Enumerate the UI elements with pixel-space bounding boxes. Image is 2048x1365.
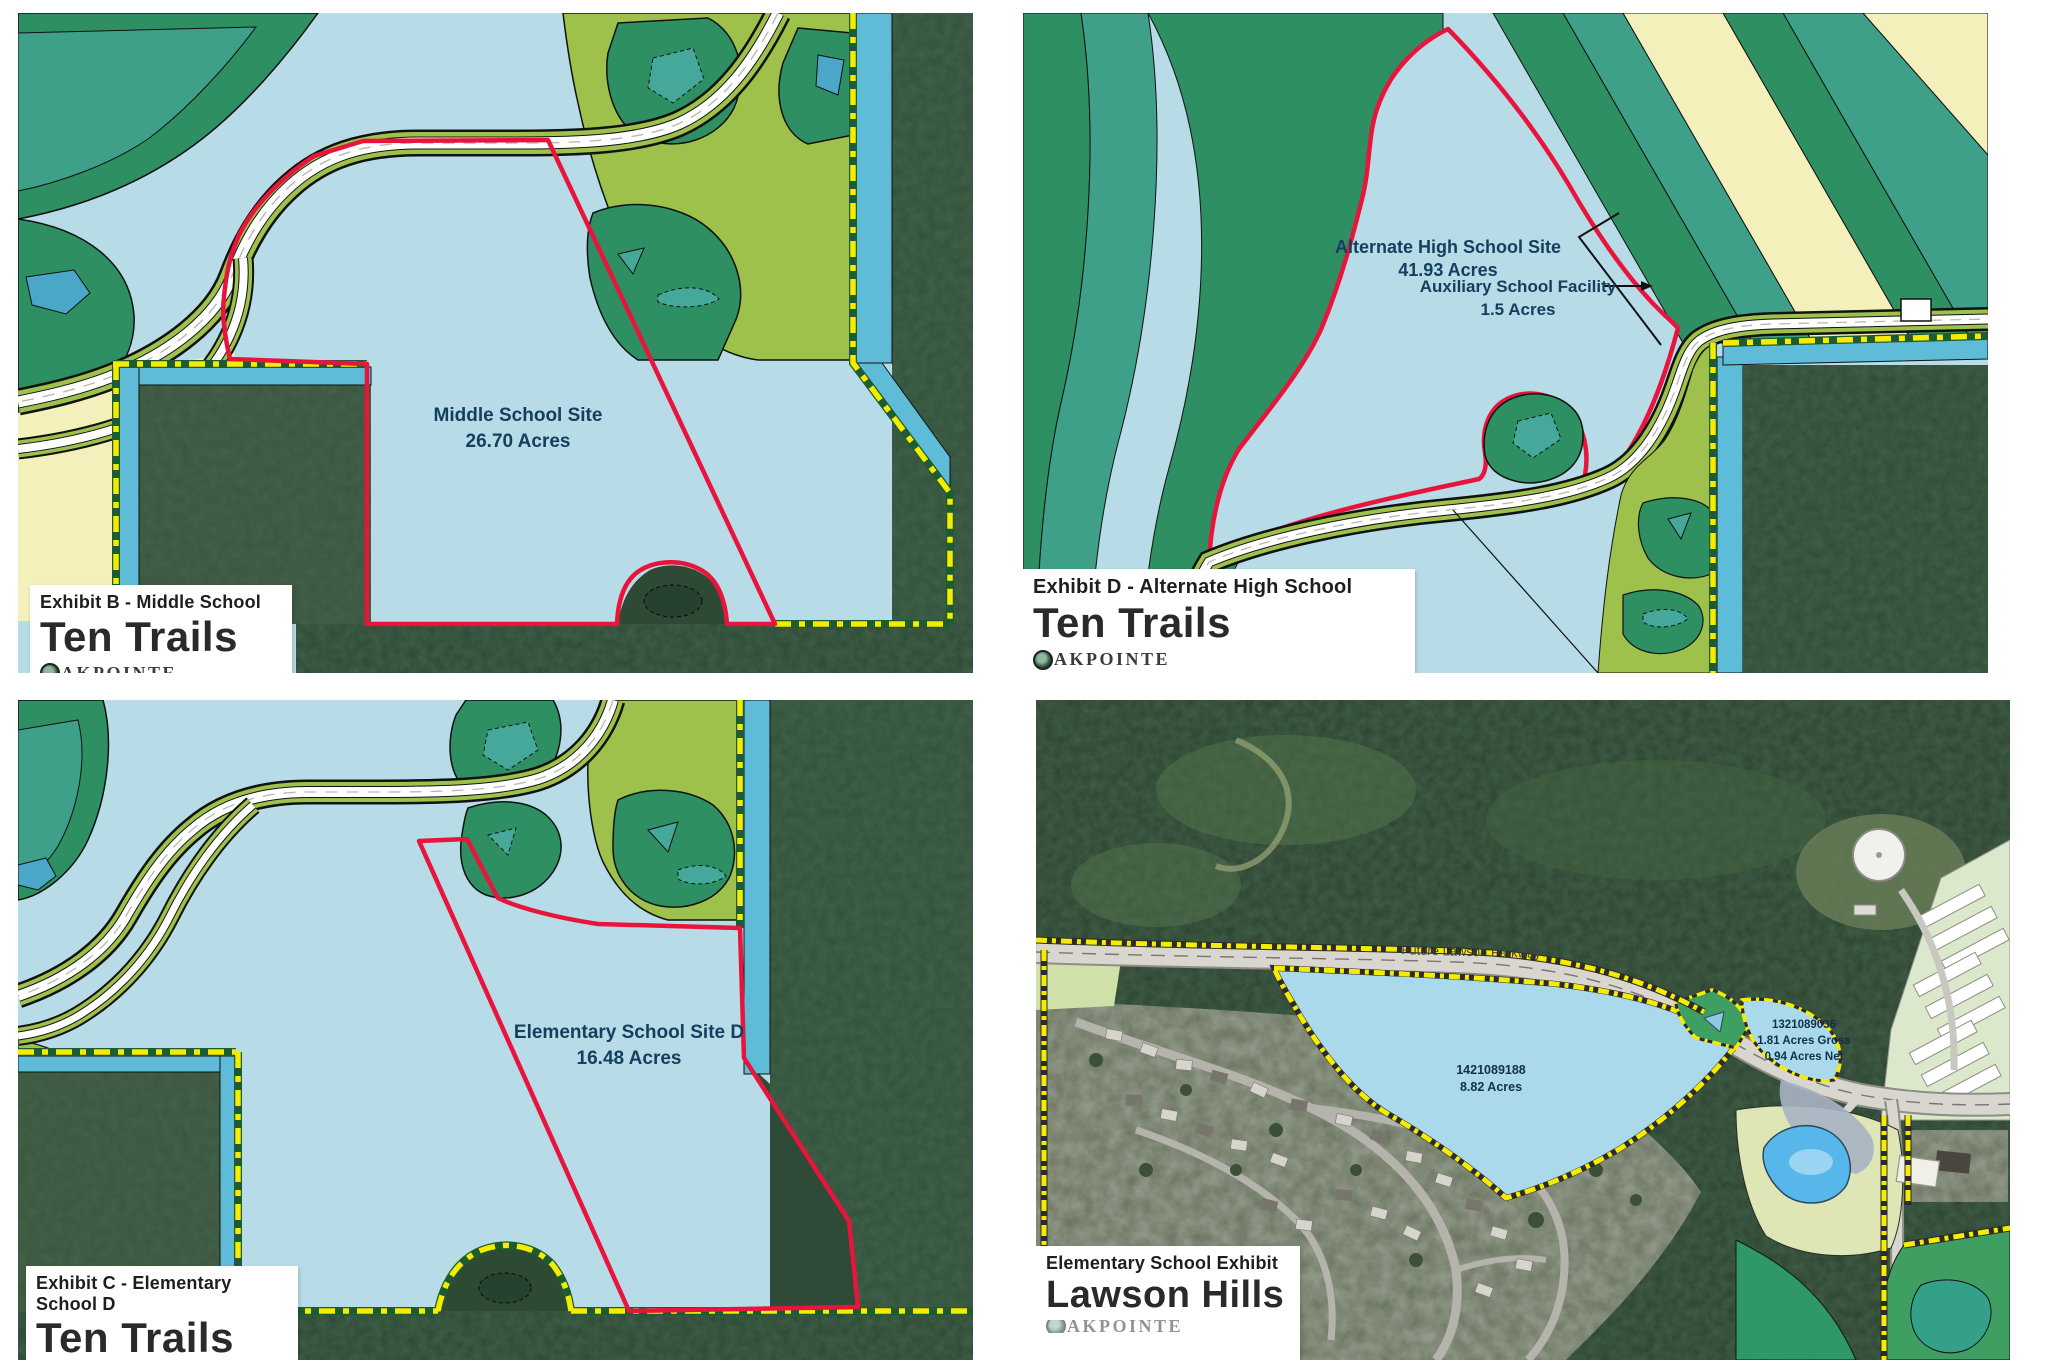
svg-text:16.48 Acres: 16.48 Acres (577, 1048, 682, 1069)
svg-text:1.81 Acres Gross: 1.81 Acres Gross (1757, 1035, 1851, 1047)
exhibit-title-block: Exhibit D - Alternate High School Ten Tr… (1023, 569, 1415, 673)
project-name: Ten Trails (36, 1316, 288, 1360)
svg-text:Alternate High School Site: Alternate High School Site (1335, 237, 1561, 257)
exhibit-label: Exhibit D - Alternate High School (1033, 576, 1405, 599)
project-name: Ten Trails (1033, 601, 1405, 645)
svg-text:1421089188: 1421089188 (1456, 1063, 1526, 1077)
project-name: Lawson Hills (1046, 1276, 1290, 1316)
exhibit-title-block: Exhibit B - Middle School Ten Trails AKP… (30, 585, 292, 673)
svg-text:Elementary School Site D: Elementary School Site D (514, 1022, 744, 1043)
oakpointe-brand-clipped: AKPOINTE (1046, 1320, 1290, 1333)
oakpointe-wordmark: AKPOINTE (1067, 1320, 1183, 1333)
map-middle-school: Middle School Site 26.70 Acres (18, 13, 973, 673)
svg-text:Auxiliary School Facility: Auxiliary School Facility (1420, 277, 1617, 296)
exhibit-title-block: Exhibit C - Elementary School D Ten Trai… (26, 1266, 298, 1360)
panel-exhibit-d-alternate-high-school: Alternate High School Site 41.93 Acres A… (1023, 13, 1988, 673)
oakpointe-brand: AKPOINTE (40, 663, 282, 673)
aerial-photo-areas (1743, 365, 1988, 673)
svg-text:1.5 Acres: 1.5 Acres (1481, 300, 1556, 319)
svg-text:8.82 Acres: 8.82 Acres (1460, 1080, 1522, 1094)
open-space-northeast (563, 13, 853, 360)
oakpointe-logo-icon (1033, 650, 1053, 670)
exhibit-label: Exhibit B - Middle School (40, 592, 282, 613)
project-name: Ten Trails (40, 615, 282, 659)
svg-text:Middle School Site: Middle School Site (434, 405, 603, 426)
pond-tract (1484, 394, 1583, 483)
oakpointe-wordmark: AKPOINTE (1054, 649, 1170, 670)
oakpointe-logo-icon (1046, 1320, 1066, 1333)
map-elementary-school-d: Elementary School Site D 16.48 Acres (18, 700, 973, 1360)
oakpointe-brand: AKPOINTE (1033, 649, 1405, 670)
exhibit-title-block: Elementary School Exhibit Lawson Hills A… (1036, 1246, 1300, 1360)
svg-text:1321089036: 1321089036 (1772, 1019, 1836, 1031)
svg-text:0.94 Acres Net: 0.94 Acres Net (1765, 1051, 1844, 1063)
svg-text:26.70 Acres: 26.70 Acres (466, 431, 571, 452)
panel-exhibit-b-middle-school: Middle School Site 26.70 Acres Exhibit B… (18, 13, 973, 673)
panel-lawson-hills-elementary: Future Lawson Parkway 1421089188 8.82 Ac… (1036, 700, 2010, 1360)
oakpointe-wordmark: AKPOINTE (61, 663, 177, 673)
oakpointe-logo-icon (40, 663, 60, 673)
exhibit-label: Elementary School Exhibit (1046, 1253, 1290, 1274)
exhibit-sheet: Middle School Site 26.70 Acres Exhibit B… (0, 0, 2048, 1365)
exhibit-label: Exhibit C - Elementary School D (36, 1273, 288, 1314)
panel-exhibit-c-elementary-school-d: Elementary School Site D 16.48 Acres Exh… (18, 700, 973, 1360)
